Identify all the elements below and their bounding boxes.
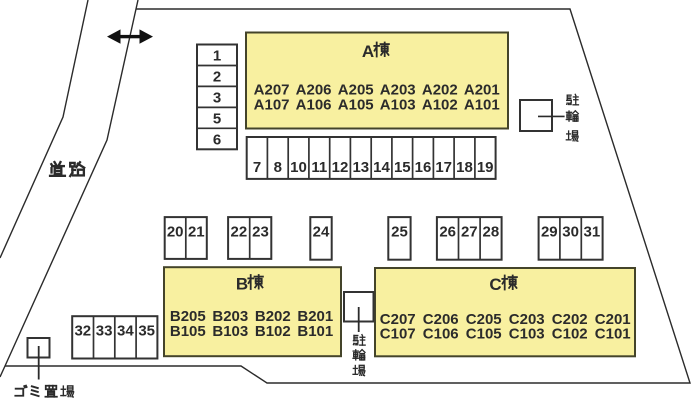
svg-text:35: 35 bbox=[138, 323, 155, 340]
svg-text:2: 2 bbox=[213, 69, 221, 86]
svg-text:3: 3 bbox=[213, 89, 221, 106]
svg-text:B105: B105 bbox=[170, 323, 206, 340]
svg-text:29: 29 bbox=[541, 224, 558, 241]
svg-text:6: 6 bbox=[213, 131, 221, 148]
svg-text:A102: A102 bbox=[422, 97, 458, 114]
svg-text:10: 10 bbox=[290, 159, 307, 176]
svg-text:C: C bbox=[489, 275, 501, 294]
svg-text:A106: A106 bbox=[296, 97, 332, 114]
svg-text:11: 11 bbox=[311, 159, 327, 176]
svg-text:22: 22 bbox=[231, 224, 248, 241]
svg-text:8: 8 bbox=[274, 159, 282, 176]
svg-text:30: 30 bbox=[562, 224, 579, 241]
svg-text:B101: B101 bbox=[297, 323, 333, 340]
svg-text:1: 1 bbox=[213, 48, 221, 65]
svg-text:20: 20 bbox=[167, 224, 184, 241]
svg-text:23: 23 bbox=[252, 224, 269, 241]
svg-text:A107: A107 bbox=[254, 97, 290, 114]
svg-text:27: 27 bbox=[461, 224, 478, 241]
svg-text:B: B bbox=[236, 275, 248, 294]
svg-text:16: 16 bbox=[415, 159, 432, 176]
svg-text:14: 14 bbox=[373, 159, 390, 176]
svg-text:C103: C103 bbox=[509, 326, 545, 343]
svg-text:C102: C102 bbox=[552, 326, 588, 343]
svg-text:C101: C101 bbox=[595, 326, 631, 343]
svg-text:26: 26 bbox=[439, 224, 456, 241]
svg-text:A101: A101 bbox=[464, 97, 500, 114]
svg-text:18: 18 bbox=[456, 159, 473, 176]
svg-text:19: 19 bbox=[477, 159, 494, 176]
svg-text:24: 24 bbox=[313, 224, 330, 241]
svg-text:31: 31 bbox=[584, 224, 601, 241]
svg-text:7: 7 bbox=[253, 159, 261, 176]
svg-text:32: 32 bbox=[74, 323, 91, 340]
svg-text:15: 15 bbox=[394, 159, 411, 176]
svg-text:28: 28 bbox=[483, 224, 500, 241]
svg-text:A105: A105 bbox=[338, 97, 374, 114]
svg-text:B103: B103 bbox=[212, 323, 248, 340]
svg-text:C106: C106 bbox=[423, 326, 459, 343]
svg-text:25: 25 bbox=[391, 224, 408, 241]
svg-text:12: 12 bbox=[332, 159, 349, 176]
svg-text:21: 21 bbox=[188, 224, 205, 241]
svg-text:C105: C105 bbox=[466, 326, 502, 343]
svg-text:5: 5 bbox=[213, 110, 221, 127]
svg-text:A103: A103 bbox=[380, 97, 416, 114]
svg-text:17: 17 bbox=[435, 159, 452, 176]
svg-text:B102: B102 bbox=[255, 323, 291, 340]
svg-text:33: 33 bbox=[96, 323, 113, 340]
svg-text:13: 13 bbox=[352, 159, 369, 176]
svg-text:34: 34 bbox=[117, 323, 134, 340]
svg-text:C107: C107 bbox=[380, 326, 416, 343]
svg-text:A: A bbox=[362, 42, 374, 61]
